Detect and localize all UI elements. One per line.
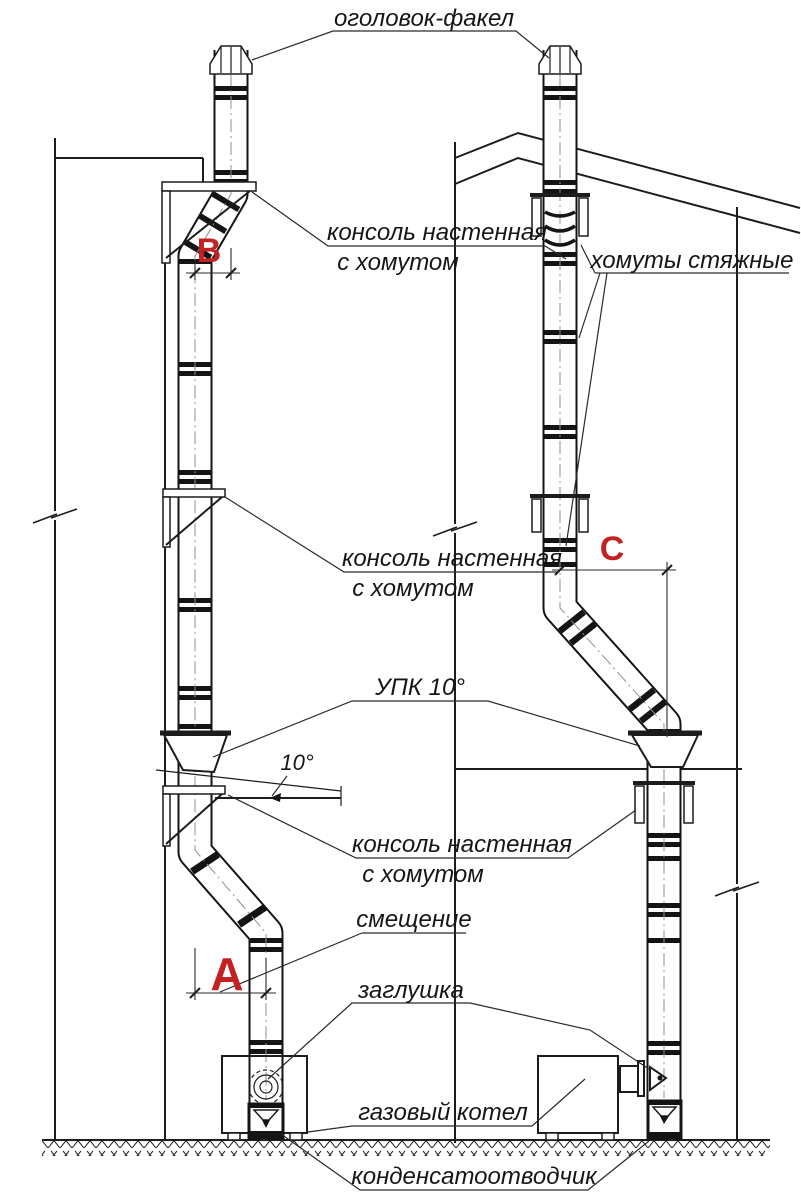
label-condensate-trap: конденсатоотводчик xyxy=(351,1163,598,1190)
roof-upper-line xyxy=(455,133,800,208)
right-boiler-foot xyxy=(602,1133,614,1140)
right-boiler-foot xyxy=(546,1133,558,1140)
label-wall-console-lower-line1: консоль настенная xyxy=(352,831,572,858)
leader-upk xyxy=(213,701,640,757)
leader-tie-clamps xyxy=(566,245,789,546)
marker-c: C xyxy=(600,530,625,568)
label-angle-10: 10° xyxy=(280,750,313,775)
chimney-installation-diagram: оголовок-факел консоль настенная с хомут… xyxy=(0,0,801,1200)
marker-b: B xyxy=(197,232,222,270)
right-condensate-trap xyxy=(648,1101,681,1138)
ground-hatch xyxy=(42,1141,770,1156)
marker-a: A xyxy=(210,948,243,1000)
label-tie-clamps: хомуты стяжные xyxy=(590,247,794,274)
leader-head-flare xyxy=(252,31,549,60)
right-upk-cone xyxy=(628,733,702,767)
label-wall-console-middle-line1: консоль настенная xyxy=(342,545,562,572)
label-upk: УПК 10° xyxy=(374,674,465,701)
left-condensate-trap xyxy=(249,1104,283,1138)
left-parapet-line xyxy=(55,158,203,182)
label-gas-boiler: газовый котел xyxy=(358,1099,528,1126)
label-wall-console-top-line1: консоль настенная xyxy=(327,219,547,246)
technical-drawing-page: оголовок-факел консоль настенная с хомут… xyxy=(0,0,801,1200)
left-boiler-foot xyxy=(290,1133,302,1140)
label-wall-console-middle-line2: с хомутом xyxy=(352,575,473,602)
label-wall-console-top-line2: с хомутом xyxy=(337,249,458,276)
label-offset: смещение xyxy=(356,906,471,933)
left-boiler-foot xyxy=(228,1133,240,1140)
label-plug: заглушка xyxy=(357,977,464,1004)
label-wall-console-lower-line2: с хомутом xyxy=(362,861,483,888)
left-upk-cone xyxy=(160,733,231,772)
right-chimney-pipe xyxy=(530,46,702,1106)
angle-arrowhead xyxy=(270,793,281,802)
leader-lines xyxy=(213,31,789,1190)
label-head-flare: оголовок-факел xyxy=(334,5,515,32)
